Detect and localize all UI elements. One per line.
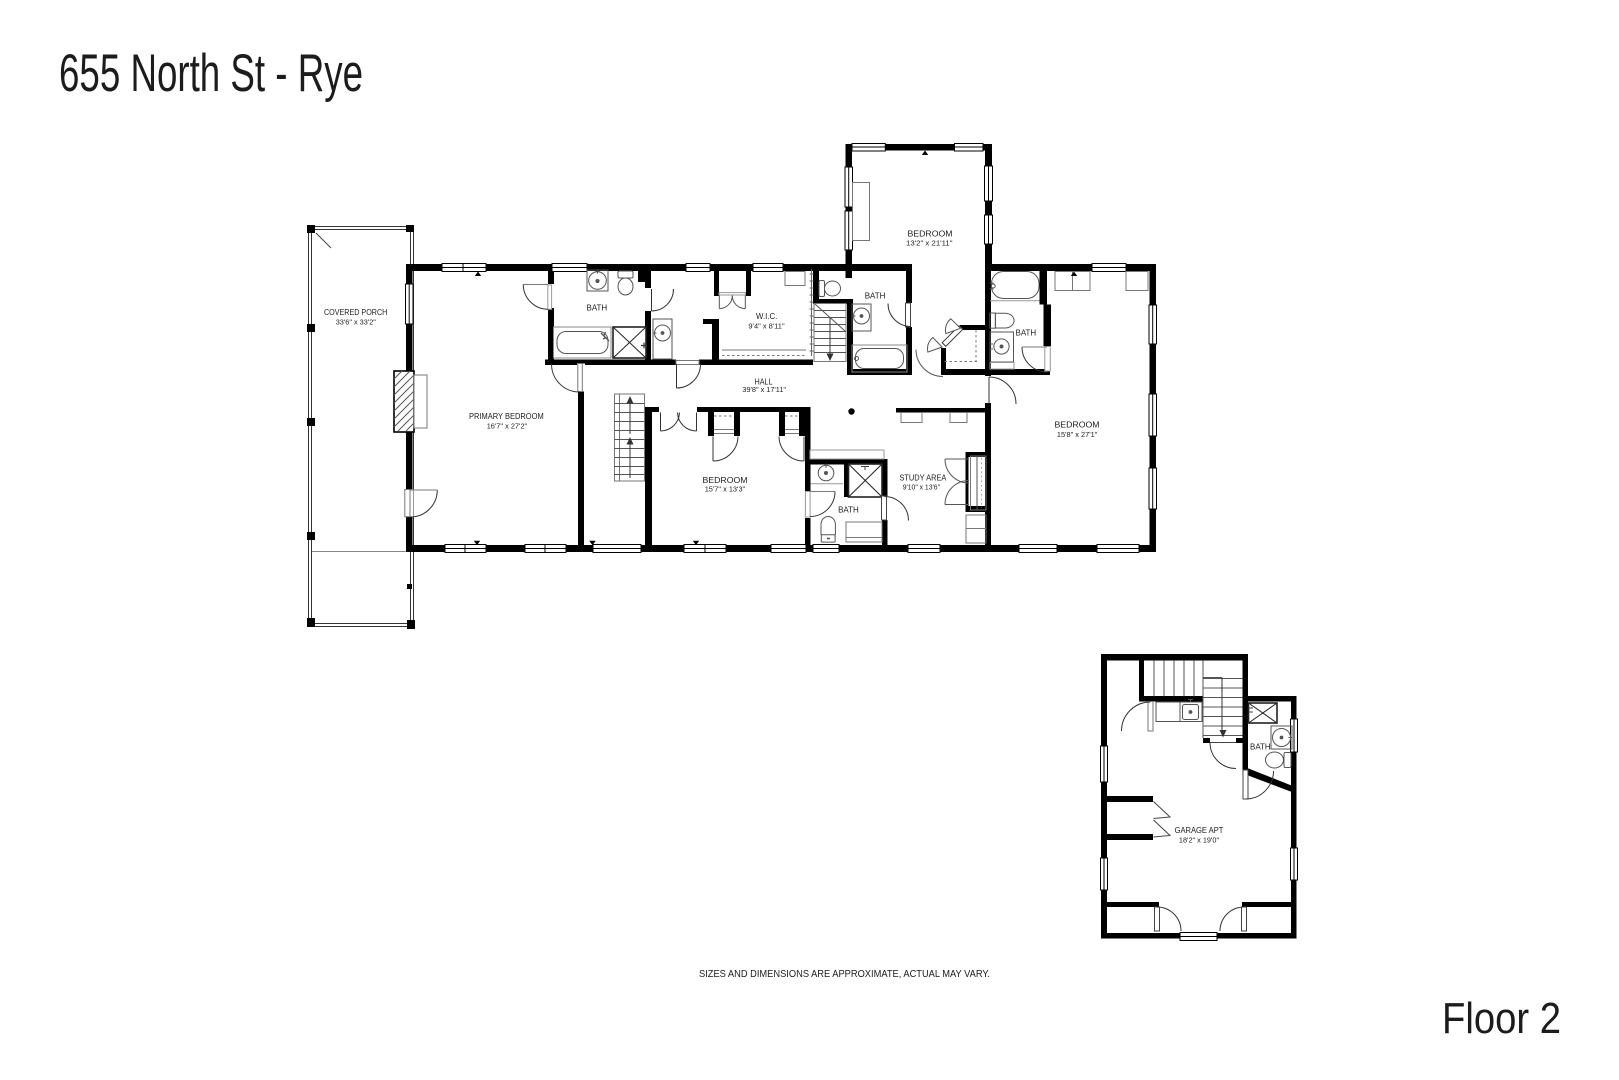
svg-text:BATH: BATH — [587, 303, 608, 313]
svg-text:33'6" x 33'2": 33'6" x 33'2" — [336, 317, 377, 326]
svg-text:GARAGE APT: GARAGE APT — [1175, 825, 1224, 835]
svg-text:15'8" x 27'1": 15'8" x 27'1" — [1057, 430, 1098, 439]
svg-text:BEDROOM: BEDROOM — [908, 229, 953, 239]
svg-text:PRIMARY BEDROOM: PRIMARY BEDROOM — [469, 411, 544, 421]
svg-text:15'7" x 13'3": 15'7" x 13'3" — [705, 484, 746, 493]
svg-text:16'7" x 27'2": 16'7" x 27'2" — [487, 421, 528, 430]
svg-text:BATH: BATH — [1250, 741, 1271, 751]
svg-text:13'2" x 21'11": 13'2" x 21'11" — [906, 238, 953, 247]
svg-text:18'2" x 19'0": 18'2" x 19'0" — [1179, 835, 1220, 844]
svg-text:COVERED PORCH: COVERED PORCH — [324, 307, 387, 317]
svg-text:BEDROOM: BEDROOM — [1055, 419, 1100, 429]
svg-text:9'4" x 8'11": 9'4" x 8'11" — [748, 322, 785, 331]
svg-text:BATH: BATH — [865, 290, 886, 300]
svg-text:BATH: BATH — [1016, 327, 1037, 337]
svg-text:Floor 2: Floor 2 — [1442, 994, 1561, 1043]
svg-text:39'8" x 17'11": 39'8" x 17'11" — [742, 385, 786, 394]
svg-text:BATH: BATH — [838, 505, 859, 515]
svg-text:655 North St - Rye: 655 North St - Rye — [59, 44, 363, 103]
svg-text:STUDY AREA: STUDY AREA — [899, 473, 946, 483]
svg-text:9'10" x 13'6": 9'10" x 13'6" — [903, 483, 941, 492]
svg-text:W.I.C.: W.I.C. — [756, 311, 777, 321]
svg-text:SIZES AND DIMENSIONS ARE APPRO: SIZES AND DIMENSIONS ARE APPROXIMATE, AC… — [699, 969, 990, 980]
